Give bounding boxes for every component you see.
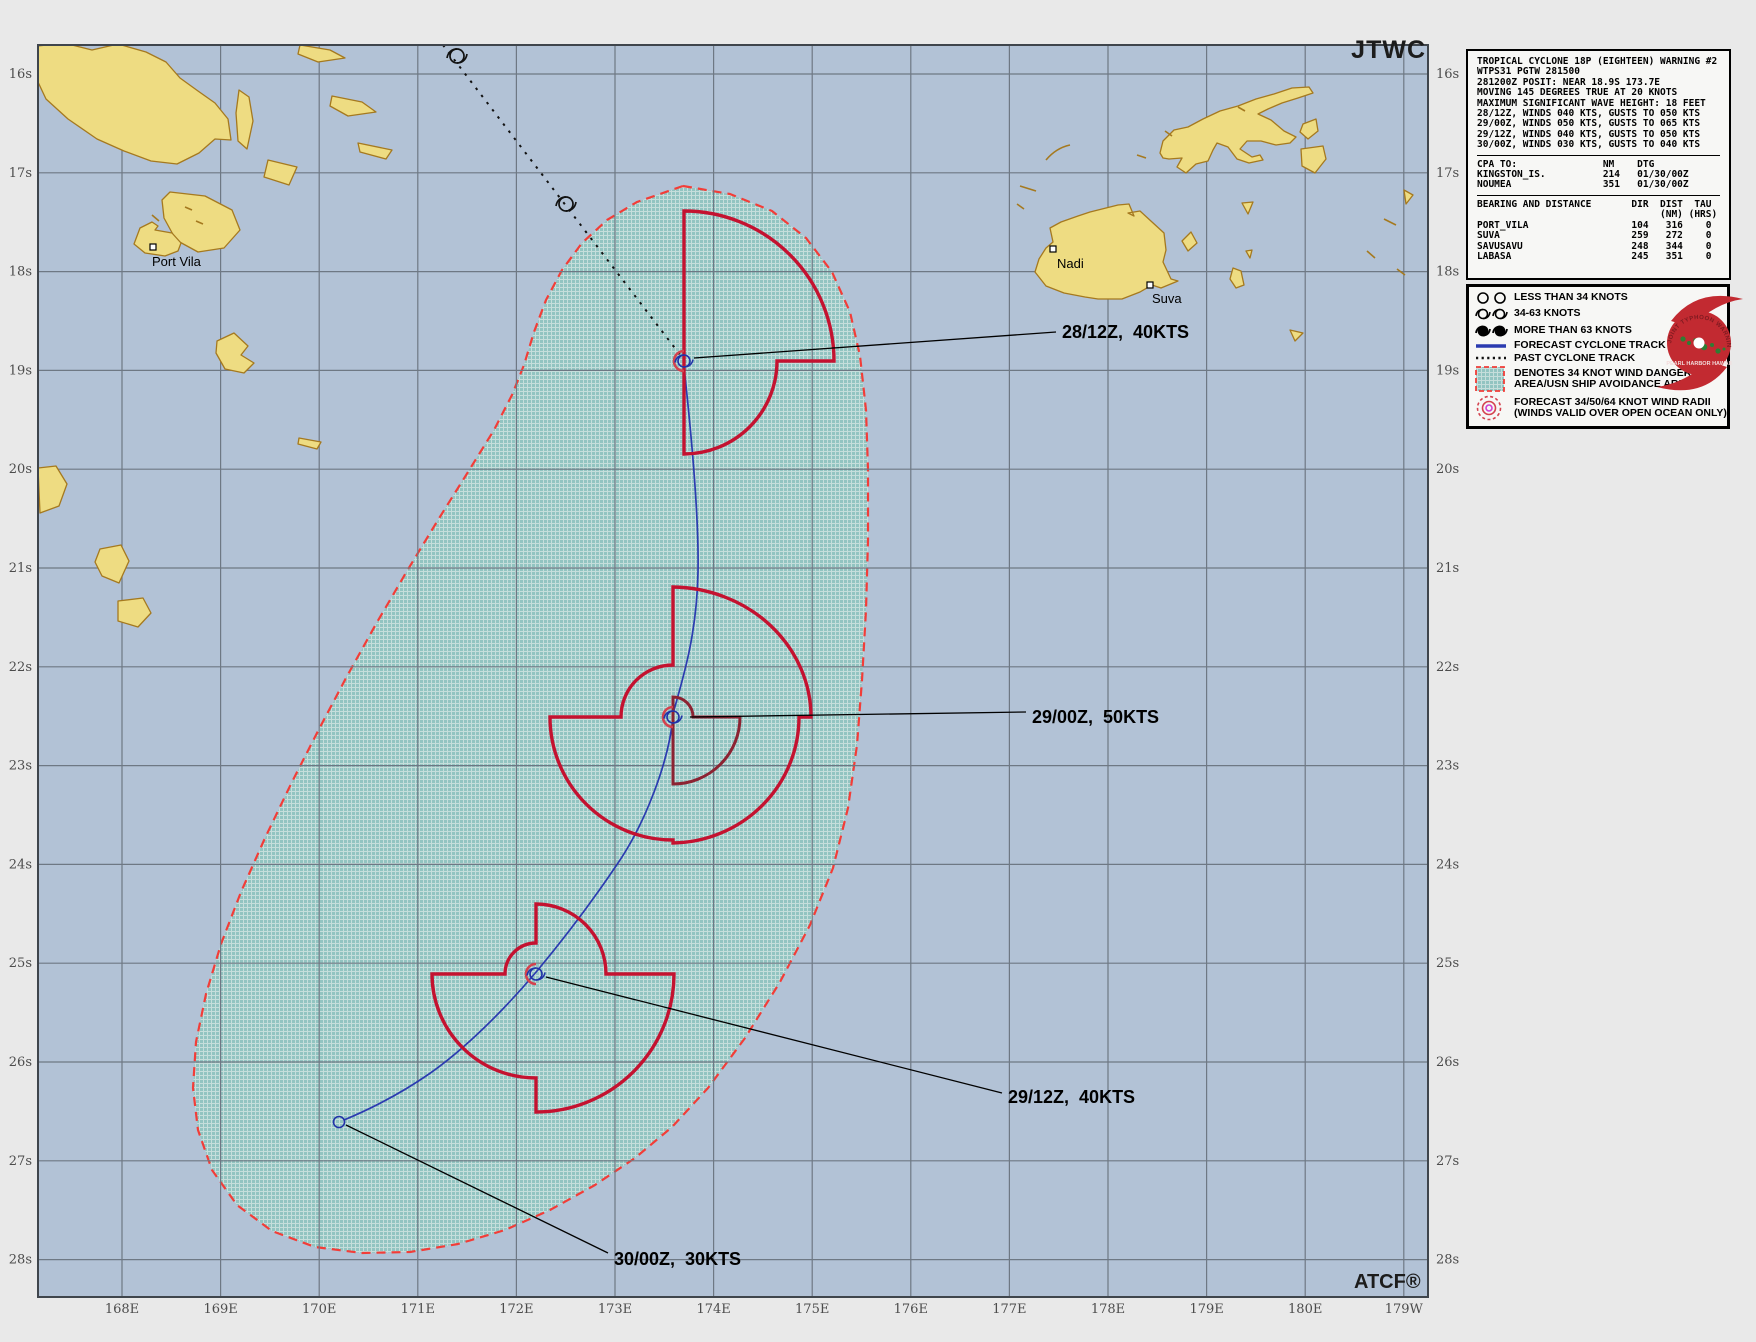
- svg-text:172E: 172E: [499, 1302, 533, 1317]
- seal-center-text: PEARL HARBOR HAWAII: [1666, 361, 1732, 367]
- warning-header-text: TROPICAL CYCLONE 18P (EIGHTEEN) WARNING …: [1477, 57, 1720, 151]
- atcf-label: ATCF®: [1354, 1271, 1421, 1294]
- svg-text:169E: 169E: [203, 1302, 237, 1317]
- svg-text:22s: 22s: [9, 660, 32, 675]
- svg-text:19s: 19s: [1436, 363, 1459, 378]
- legend-label: 34-63 KNOTS: [1514, 308, 1581, 320]
- svg-text:18s: 18s: [9, 265, 32, 280]
- svg-text:24s: 24s: [9, 857, 32, 872]
- legend-label: FORECAST 34/50/64 KNOT WIND RADII (WINDS…: [1514, 397, 1727, 420]
- svg-text:28s: 28s: [1436, 1253, 1459, 1268]
- svg-text:179E: 179E: [1189, 1302, 1223, 1317]
- svg-text:27s: 27s: [1436, 1154, 1459, 1169]
- label-tau36: 29/12Z, 40KTS: [1008, 1087, 1135, 1107]
- svg-text:17s: 17s: [9, 166, 32, 181]
- svg-text:18s: 18s: [1436, 265, 1459, 280]
- svg-text:23s: 23s: [9, 759, 32, 774]
- suva-marker: [1147, 282, 1153, 288]
- svg-text:175E: 175E: [795, 1302, 829, 1317]
- svg-text:16s: 16s: [1436, 67, 1459, 82]
- lt34-knots-icon: [1474, 291, 1514, 305]
- svg-text:26s: 26s: [9, 1055, 32, 1070]
- legend-panel: LESS THAN 34 KNOTS 34-63 KNOTS MORE THAN…: [1466, 284, 1730, 429]
- svg-text:16s: 16s: [9, 67, 32, 82]
- svg-text:174E: 174E: [696, 1302, 730, 1317]
- svg-text:171E: 171E: [401, 1302, 435, 1317]
- svg-text:24s: 24s: [1436, 857, 1459, 872]
- svg-text:17s: 17s: [1436, 166, 1459, 181]
- label-tau24: 29/00Z, 50KTS: [1032, 707, 1159, 727]
- svg-text:25s: 25s: [1436, 956, 1459, 971]
- svg-text:25s: 25s: [9, 956, 32, 971]
- panel-divider: [1477, 195, 1720, 196]
- svg-text:179W: 179W: [1385, 1302, 1424, 1317]
- svg-text:177E: 177E: [992, 1302, 1026, 1317]
- svg-text:173E: 173E: [598, 1302, 632, 1317]
- legend-label: LESS THAN 34 KNOTS: [1514, 292, 1628, 304]
- svg-text:19s: 19s: [9, 363, 32, 378]
- cyclone-warning-graphic: Port Vila Nadi Suva 28/12Z, 40KTS 29/00Z…: [0, 0, 1756, 1342]
- legend-label: MORE THAN 63 KNOTS: [1514, 325, 1632, 337]
- svg-text:20s: 20s: [1436, 462, 1459, 477]
- label-tau48: 30/00Z, 30KTS: [614, 1249, 741, 1269]
- svg-text:22s: 22s: [1436, 660, 1459, 675]
- nadi-marker: [1050, 246, 1056, 252]
- wind-radii-icon: [1474, 394, 1514, 422]
- port-vila-marker: [150, 244, 156, 250]
- svg-text:27s: 27s: [9, 1154, 32, 1169]
- jtwc-label: JTWC: [1200, 36, 1426, 65]
- jtwc-seal: JOINT TYPHOON WARNING CENTER PEARL HARBO…: [1655, 291, 1743, 395]
- past-track-icon: [1474, 353, 1514, 363]
- legend-row-wind-radii: FORECAST 34/50/64 KNOT WIND RADII (WINDS…: [1474, 394, 1727, 422]
- svg-text:20s: 20s: [9, 462, 32, 477]
- cpa-table: CPA TO: NM DTG KINGSTON_IS. 214 01/30/00…: [1477, 160, 1720, 191]
- svg-text:180E: 180E: [1288, 1302, 1322, 1317]
- seal-eye: [1694, 338, 1705, 349]
- suva-label: Suva: [1152, 291, 1182, 306]
- svg-text:28s: 28s: [9, 1253, 32, 1268]
- label-tau12: 28/12Z, 40KTS: [1062, 322, 1189, 342]
- legend-label: PAST CYCLONE TRACK: [1514, 353, 1635, 365]
- svg-text:21s: 21s: [1436, 561, 1459, 576]
- forecast-track-icon: [1474, 341, 1514, 351]
- svg-text:178E: 178E: [1091, 1302, 1125, 1317]
- gt63-knots-icon: [1474, 323, 1514, 339]
- svg-text:176E: 176E: [894, 1302, 928, 1317]
- port-vila-label: Port Vila: [152, 254, 202, 269]
- svg-text:26s: 26s: [1436, 1055, 1459, 1070]
- danger-area-swatch-icon: [1474, 365, 1514, 393]
- legend-label: FORECAST CYCLONE TRACK: [1514, 340, 1666, 352]
- 34-63-knots-icon: [1474, 306, 1514, 322]
- svg-text:23s: 23s: [1436, 759, 1459, 774]
- svg-text:170E: 170E: [302, 1302, 336, 1317]
- svg-text:21s: 21s: [9, 561, 32, 576]
- panel-divider: [1477, 155, 1720, 156]
- bearing-distance-table: BEARING AND DISTANCE DIR DIST TAU (NM) (…: [1477, 200, 1720, 262]
- nadi-label: Nadi: [1057, 256, 1084, 271]
- warning-text-panel: TROPICAL CYCLONE 18P (EIGHTEEN) WARNING …: [1466, 49, 1731, 280]
- svg-text:168E: 168E: [105, 1302, 139, 1317]
